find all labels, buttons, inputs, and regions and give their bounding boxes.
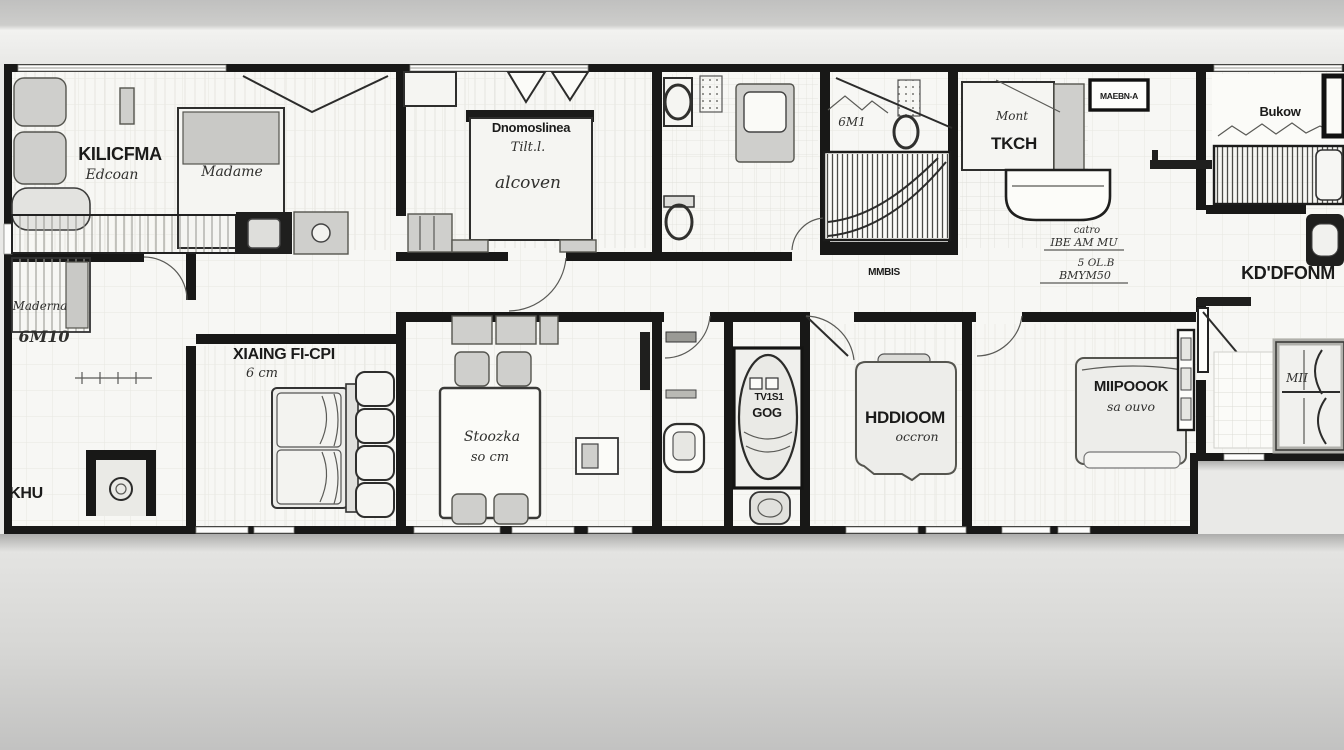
wardrobe-bed: MII [1276,342,1344,450]
tiles [1214,352,1276,448]
bench [452,240,488,252]
bed: HDDIOOM occron [856,354,956,480]
shelf-post [1152,150,1158,160]
bed-script: Maderna [12,299,68,313]
room-subtitle: 6 cm [246,366,278,381]
room-title: HDDIOOM [865,408,945,427]
chair [455,352,489,386]
room-subtitle: sa ouvo [1107,399,1155,414]
window [512,527,574,533]
wall-corridor-bottom [854,312,976,322]
sketch-note: 6M1 [838,115,866,129]
window [846,527,918,533]
dim-text: IBE AM MU [1049,236,1118,249]
bed-title: Dnomoslinea [492,120,571,135]
window [4,224,12,254]
wall-interior [186,346,196,534]
window [1002,527,1050,533]
room-title: MIIPOOOK [1094,378,1169,395]
chair [452,494,486,524]
wall-shelf [666,332,696,342]
tub-label: TV1S1 [754,392,784,403]
bay-seat [1006,170,1110,220]
dresser [408,214,452,252]
room-title: KILICFMA [78,144,162,164]
bench [560,240,596,252]
bed: Maderna [12,258,90,332]
chair [497,352,531,386]
wall-shelf [1197,297,1251,306]
table-title: Stoozka [464,429,520,445]
wall-step [1190,461,1198,534]
room-title: XIAING FI-CPI [233,346,335,363]
wall-box-label: MAEBN-A [1100,91,1138,101]
window [414,527,500,533]
wall-interior [1196,380,1206,461]
room-title: Bukow [1259,104,1301,119]
room-subtitle: occron [895,429,938,444]
wall-outer-left [4,64,12,534]
wall-outer-bottom-right [1190,453,1344,461]
background-floor-bottom [0,534,1344,750]
wall-interior [962,312,972,534]
wall-balcony-bottom [1206,205,1306,214]
bidet [664,424,704,472]
room-subtitle: Edcoan [85,167,139,183]
sofa-module [14,78,66,126]
dark-appliance [1306,214,1344,266]
window [254,527,294,533]
tv-panel [640,332,650,390]
background-wall-top [0,0,1344,66]
wall-interior [396,312,406,534]
wall-window-frame [1178,330,1194,430]
corner-label: KHU [9,485,43,502]
bath-alcove [86,450,156,516]
bathtub: TV1S1 GOG [739,355,797,479]
cabinet [452,316,492,344]
wardrobe [1054,84,1084,172]
cabinet [540,316,558,344]
room-title: KD'DFONM [1241,263,1335,283]
tub-label: GOG [752,405,782,420]
bed-pillow [183,112,279,164]
wall-interior [652,64,662,254]
bed-script: alcoven [495,173,561,193]
wall-living-top [196,334,398,344]
cabinet [404,72,456,106]
dim-text: 5 OL.B [1078,257,1115,269]
kitchen-counter [12,212,348,254]
hall-shelf [1150,160,1212,169]
dim-text: BMYM50 [1058,269,1111,282]
staircase [824,152,950,240]
wall-interior [724,312,733,534]
table-subtitle: so cm [471,450,509,465]
bed-script-label: Madame [200,164,263,180]
wall-corridor-bottom [1022,312,1196,322]
bed-pillow [66,262,88,328]
bed-footboard [1084,452,1180,468]
wardrobe-script: MII [1285,371,1308,385]
hall-note: MMBIS [868,267,900,278]
window [410,65,588,71]
toilet [750,492,790,524]
ledge-shadow [1198,461,1344,471]
bed-script: Tilt.l. [511,140,546,155]
hatched-bed [1214,146,1344,204]
script-note: Mont [995,109,1028,123]
window [1224,454,1264,460]
wall-shelf [666,390,696,398]
shelf [700,76,722,112]
room-title: TKCH [991,134,1037,153]
sofa-module [14,132,66,184]
wall-corridor-top [662,252,792,261]
window [1058,527,1090,533]
window [926,527,966,533]
bed [962,82,1054,170]
wall-box: MAEBN-A [1090,80,1148,110]
wall-corridor-bottom [710,312,806,322]
tv-cabinet [1324,76,1344,136]
dim-text: catro [1074,225,1100,236]
side-unit [576,438,618,474]
bed: Dnomoslinea Tilt.l. alcoven [466,110,594,240]
wall-stairs-landing [820,242,958,255]
window [588,527,632,533]
wall-corridor-top [566,252,662,261]
wall-interior [1196,64,1206,210]
wall-interior [186,254,196,300]
bed-code: 6M10 [18,327,69,346]
wall-interior [652,312,662,534]
floor-plan-scene: Madame KILICFMA Edcoan Dnomoslinea Tilt.… [0,0,1344,750]
window [18,65,226,71]
wall-corridor-top [396,252,508,261]
wall-cabinet [120,88,134,124]
cabinet [496,316,536,344]
chair [494,494,528,524]
shelf [898,80,920,116]
window [1214,65,1342,71]
window [196,527,248,533]
sofa [272,384,358,512]
plan-drop-shadow [0,534,1344,552]
bed-pillow [1316,150,1342,200]
floor-plan-drawing: Madame KILICFMA Edcoan Dnomoslinea Tilt.… [0,0,1344,750]
bed: MIIPOOOK sa ouvo [1076,358,1186,468]
